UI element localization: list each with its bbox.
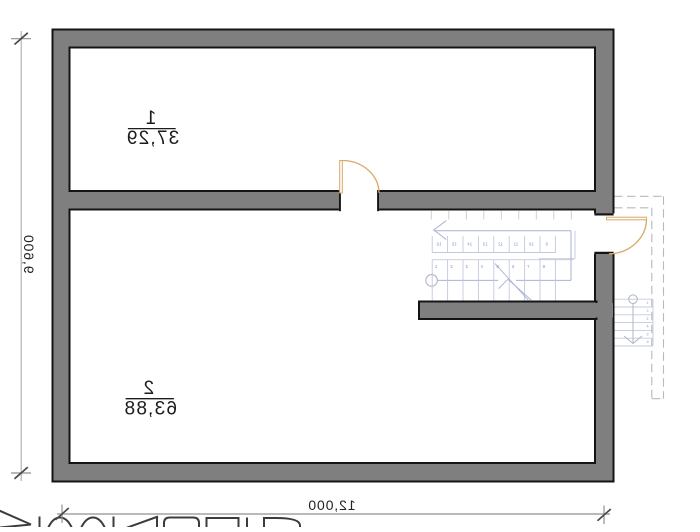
svg-text:1: 1 [146,108,157,129]
svg-text:4: 4 [646,325,648,329]
svg-text:15: 15 [451,241,456,246]
svg-text:37,29: 37,29 [126,128,180,149]
svg-text:1: 1 [646,301,648,305]
svg-text:12: 12 [498,241,503,246]
svg-text:2: 2 [144,378,155,399]
svg-text:63,88: 63,88 [123,398,177,419]
svg-text:5: 5 [646,332,648,336]
svg-text:12,000: 12,000 [307,497,355,513]
svg-text:10: 10 [528,241,533,246]
svg-text:16: 16 [436,241,441,246]
svg-text:2: 2 [646,309,648,313]
svg-text:3: 3 [646,317,648,321]
svg-text:13: 13 [482,241,487,246]
svg-text:14: 14 [467,241,472,246]
svg-text:6: 6 [646,340,648,344]
svg-text:11: 11 [513,241,518,246]
svg-text:9,600: 9,600 [21,234,37,274]
